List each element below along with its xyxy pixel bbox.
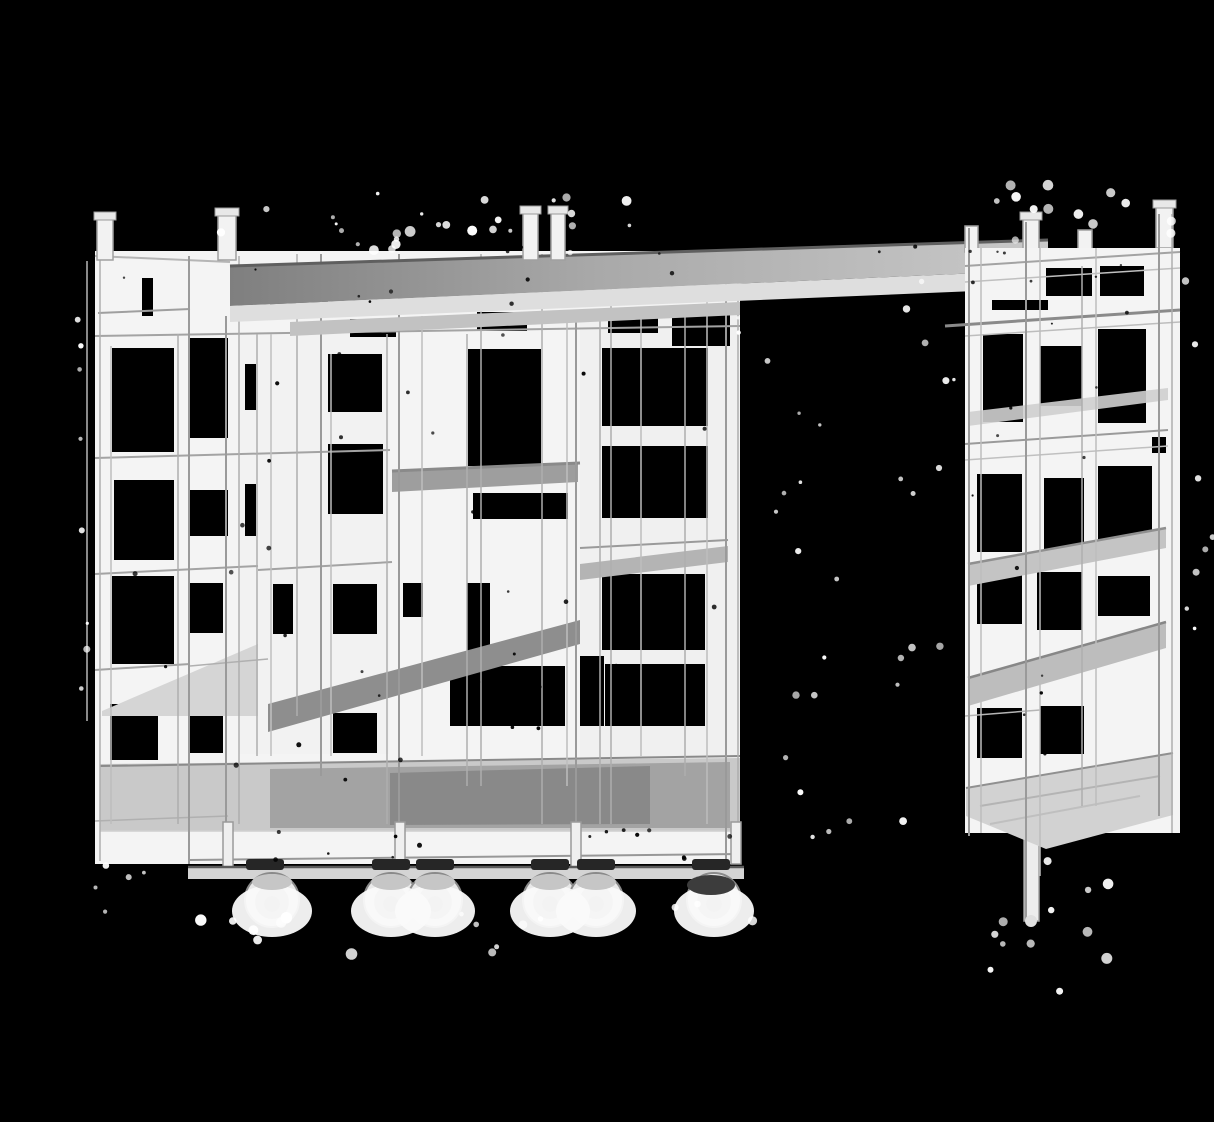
black-speckle — [229, 570, 234, 575]
shelf-opening — [273, 584, 293, 634]
white-speckle — [229, 917, 237, 925]
black-speckle — [1004, 400, 1008, 404]
black-speckle — [605, 830, 608, 833]
white-speckle — [552, 198, 556, 202]
black-speckle — [1015, 566, 1019, 570]
white-speckle — [1011, 192, 1021, 202]
black-speckle — [1082, 456, 1085, 459]
white-speckle — [77, 367, 82, 372]
caster-mount — [577, 859, 615, 870]
caster-bracket — [530, 874, 570, 890]
caster-bracket — [687, 875, 735, 895]
white-speckle — [936, 643, 943, 650]
black-speckle — [507, 590, 510, 593]
white-speckle — [628, 224, 632, 228]
white-speckle — [898, 655, 904, 661]
white-speckle — [394, 236, 399, 241]
black-speckle — [394, 835, 398, 839]
white-speckle — [826, 829, 831, 834]
black-speckle — [1095, 276, 1097, 278]
post-stub-cap — [548, 206, 568, 214]
black-speckle — [635, 833, 639, 837]
white-speckle — [481, 196, 489, 204]
drop-post — [731, 822, 741, 864]
black-speckle — [1125, 311, 1129, 315]
black-speckle — [1007, 531, 1009, 533]
shelf-opening — [112, 348, 174, 452]
white-speckle — [249, 925, 259, 935]
white-speckle — [217, 228, 225, 236]
white-speckle — [388, 245, 396, 253]
black-speckle — [526, 277, 530, 281]
white-speckle — [1085, 887, 1091, 893]
white-speckle — [567, 250, 572, 255]
white-speckle — [898, 477, 903, 482]
white-speckle — [765, 358, 771, 364]
black-speckle — [652, 382, 656, 386]
white-speckle — [1043, 204, 1053, 214]
post-stub — [97, 218, 113, 260]
black-speckle — [1041, 675, 1043, 677]
shelf-opening — [328, 354, 382, 412]
black-speckle — [477, 681, 480, 684]
shelf-opening — [1098, 576, 1150, 616]
white-speckle — [339, 228, 344, 233]
black-speckle — [996, 434, 999, 437]
black-speckle — [682, 856, 687, 861]
post-stub — [523, 212, 538, 260]
black-speckle — [538, 685, 542, 689]
black-speckle — [133, 571, 138, 576]
white-speckle — [103, 910, 107, 914]
white-speckle — [78, 343, 83, 348]
black-speckle — [369, 300, 372, 303]
white-speckle — [1192, 341, 1198, 347]
black-speckle — [267, 459, 271, 463]
black-speckle — [588, 835, 591, 838]
caster-mount — [416, 859, 454, 870]
shelving-product-photo: Grayscale product photograph of white mo… — [40, 16, 1214, 1106]
black-speckle — [296, 742, 301, 747]
black-speckle — [164, 665, 167, 668]
white-speckle — [1103, 879, 1114, 890]
post-stub — [551, 212, 565, 260]
white-speckle — [488, 948, 496, 956]
white-speckle — [436, 222, 441, 227]
black-speckle — [1009, 406, 1012, 409]
white-speckle — [942, 377, 949, 384]
black-speckle — [537, 726, 541, 730]
white-speckle — [908, 644, 916, 652]
caster-bracket — [371, 874, 411, 890]
shelf-opening — [403, 583, 423, 617]
white-speckle — [1056, 988, 1063, 995]
white-speckle — [79, 686, 84, 691]
caster-bracket — [252, 874, 292, 890]
white-speckle — [736, 330, 740, 334]
white-speckle — [519, 920, 528, 929]
white-speckle — [420, 212, 423, 215]
white-speckle — [936, 465, 942, 471]
black-speckle — [844, 243, 846, 245]
black-speckle — [337, 352, 341, 356]
post-foot — [1025, 915, 1037, 927]
white-speckle — [903, 305, 910, 312]
white-speckle — [1182, 277, 1189, 284]
white-speckle — [799, 480, 803, 484]
white-speckle — [1202, 546, 1208, 552]
black-speckle — [582, 372, 586, 376]
white-speckle — [895, 683, 899, 687]
black-speckle — [972, 494, 974, 496]
shelf-opening — [333, 713, 377, 753]
white-speckle — [911, 491, 916, 496]
black-speckle — [1095, 386, 1098, 389]
white-speckle — [195, 914, 206, 925]
white-speckle — [568, 210, 575, 217]
black-speckle — [712, 605, 717, 610]
white-speckle — [103, 862, 110, 869]
black-speckle — [327, 852, 330, 855]
black-speckle — [339, 435, 343, 439]
black-speckle — [878, 250, 881, 253]
black-speckle — [126, 717, 130, 721]
white-speckle — [1027, 940, 1035, 948]
white-speckle — [952, 378, 955, 381]
white-speckle — [1167, 217, 1176, 226]
black-speckle — [417, 843, 422, 848]
black-speckle — [511, 725, 515, 729]
shelf-opening — [473, 493, 568, 519]
black-speckle — [273, 857, 278, 862]
white-speckle — [922, 340, 929, 347]
drop-post — [223, 822, 233, 870]
white-speckle — [774, 510, 778, 514]
black-speckle — [506, 250, 510, 254]
shelf-opening — [190, 583, 223, 633]
black-speckle — [343, 778, 347, 782]
white-speckle — [1074, 209, 1084, 219]
black-speckle — [658, 252, 661, 255]
white-speckle — [276, 917, 286, 927]
white-speckle — [1193, 569, 1200, 576]
black-speckle — [509, 302, 513, 306]
black-speckle — [1051, 323, 1053, 325]
white-speckle — [83, 646, 90, 653]
post-stub-cap — [1153, 200, 1176, 208]
black-speckle — [471, 510, 474, 513]
black-speckle — [615, 664, 618, 667]
black-speckle — [513, 653, 516, 656]
black-speckle — [971, 281, 975, 285]
black-speckle — [1040, 691, 1043, 694]
caster-halo — [232, 885, 312, 937]
white-speckle — [991, 931, 998, 938]
white-speckle — [1185, 606, 1189, 610]
white-speckle — [126, 874, 132, 880]
white-speckle — [1000, 941, 1006, 947]
black-speckle — [391, 856, 394, 859]
black-speckle — [996, 251, 998, 253]
caster-mount — [246, 859, 284, 870]
caster-bracket — [415, 874, 455, 890]
white-speckle — [1088, 219, 1098, 229]
shelf-opening — [602, 446, 708, 518]
white-speckle — [346, 948, 358, 960]
white-speckle — [569, 222, 576, 229]
white-speckle — [405, 226, 416, 237]
black-speckle — [727, 834, 732, 839]
white-speckle — [834, 577, 839, 582]
white-speckle — [562, 193, 570, 201]
white-speckle — [86, 622, 89, 625]
shelf-opening — [1037, 572, 1082, 630]
caster-halo — [556, 885, 636, 937]
white-speckle — [797, 789, 803, 795]
post-stub — [218, 214, 236, 260]
white-speckle — [1030, 205, 1038, 213]
white-speckle — [473, 922, 479, 928]
black-speckle — [670, 271, 674, 275]
black-speckle — [371, 511, 374, 514]
caster-mount — [692, 859, 730, 870]
black-speckle — [398, 758, 403, 763]
black-speckle — [1104, 506, 1109, 511]
white-speckle — [694, 901, 701, 908]
black-speckle — [277, 830, 281, 834]
shelf-opening — [1046, 268, 1092, 296]
black-speckle — [647, 828, 651, 832]
post-stub-cap — [215, 208, 239, 216]
white-speckle — [1048, 907, 1054, 913]
black-speckle — [768, 242, 771, 245]
black-speckle — [361, 670, 364, 673]
white-speckle — [1121, 199, 1130, 208]
caster-mount — [372, 859, 410, 870]
white-speckle — [1166, 229, 1175, 238]
shelf-opening — [602, 348, 708, 426]
white-speckle — [1101, 953, 1112, 964]
white-speckle — [818, 423, 821, 426]
black-speckle — [969, 250, 972, 253]
shelf-opening — [190, 338, 228, 438]
white-speckle — [467, 226, 477, 236]
black-speckle — [168, 447, 172, 451]
shelf-opening — [245, 364, 256, 410]
white-speckle — [822, 655, 826, 659]
white-speckle — [495, 217, 502, 224]
black-speckle — [406, 391, 410, 395]
black-speckle — [123, 277, 125, 279]
shelf-opening — [190, 490, 228, 536]
black-speckle — [358, 295, 361, 298]
white-speckle — [782, 491, 787, 496]
white-speckle — [79, 527, 85, 533]
white-speckle — [75, 317, 81, 323]
white-speckle — [331, 215, 335, 219]
white-speckle — [999, 917, 1008, 926]
black-speckle — [161, 634, 166, 639]
white-speckle — [489, 226, 497, 234]
white-speckle — [508, 229, 512, 233]
shelf-opening — [1040, 706, 1084, 754]
shelf-opening — [605, 664, 705, 726]
white-speckle — [1195, 475, 1201, 481]
white-speckle — [1193, 627, 1197, 631]
black-speckle — [1003, 252, 1006, 255]
white-speckle — [792, 691, 799, 698]
white-speckle — [811, 692, 818, 699]
white-speckle — [1006, 180, 1016, 190]
black-speckle — [913, 245, 917, 249]
white-speckle — [369, 245, 379, 255]
shelf-opening — [602, 574, 705, 650]
white-speckle — [94, 886, 98, 890]
white-speckle — [263, 206, 269, 212]
white-speckle — [737, 316, 740, 319]
white-speckle — [142, 871, 146, 875]
white-speckle — [797, 412, 800, 415]
white-speckle — [253, 936, 262, 945]
black-speckle — [275, 381, 279, 385]
white-speckle — [494, 944, 499, 949]
shelf-opening — [114, 480, 174, 560]
post-stub-cap — [94, 212, 116, 220]
white-speckle — [1012, 236, 1019, 243]
black-speckle — [1023, 713, 1026, 716]
black-speckle — [1075, 589, 1079, 593]
black-speckle — [234, 763, 239, 768]
caster-bracket — [576, 874, 616, 890]
white-speckle — [994, 198, 1000, 204]
black-speckle — [564, 599, 569, 604]
white-speckle — [899, 817, 907, 825]
scene-canvas — [40, 16, 1214, 1106]
white-speckle — [846, 818, 852, 824]
black-speckle — [283, 634, 287, 638]
white-speckle — [442, 221, 450, 229]
black-speckle — [520, 246, 523, 249]
white-speckle — [988, 967, 994, 973]
white-speckle — [810, 835, 814, 839]
black-speckle — [703, 427, 707, 431]
white-speckle — [748, 916, 757, 925]
black-speckle — [1043, 752, 1046, 755]
shelf-opening — [245, 484, 256, 536]
white-speckle — [622, 196, 632, 206]
black-speckle — [1030, 280, 1033, 283]
white-speckle — [795, 548, 801, 554]
white-speckle — [335, 222, 338, 225]
black-speckle — [622, 828, 626, 832]
shelf-opening — [977, 474, 1022, 552]
caster-mount — [531, 859, 569, 870]
white-speckle — [1044, 857, 1052, 865]
black-speckle — [621, 596, 625, 600]
white-speckle — [1043, 180, 1054, 191]
shelf-opening — [1098, 329, 1146, 423]
shelf-opening — [467, 583, 490, 656]
black-speckle — [266, 546, 271, 551]
white-speckle — [672, 904, 679, 911]
shelf-opening — [328, 444, 383, 514]
white-speckle — [78, 437, 82, 441]
black-speckle — [240, 523, 245, 528]
post-stub-cap — [520, 206, 541, 214]
shelf-opening — [112, 576, 174, 664]
shelf-opening — [1044, 478, 1084, 554]
white-speckle — [919, 279, 924, 284]
black-speckle — [389, 289, 393, 293]
black-speckle — [485, 452, 487, 454]
black-speckle — [501, 333, 505, 337]
white-speckle — [376, 192, 380, 196]
shelf-opening — [333, 584, 377, 634]
shelf-opening — [977, 708, 1022, 758]
white-speckle — [1083, 927, 1093, 937]
white-speckle — [783, 755, 788, 760]
white-speckle — [356, 242, 360, 246]
white-speckle — [459, 912, 464, 917]
shelf-opening — [468, 349, 541, 466]
post-stub-cap — [1020, 212, 1042, 220]
black-speckle — [378, 694, 381, 697]
black-speckle — [1120, 264, 1122, 266]
shelf-opening — [672, 314, 730, 346]
black-speckle — [431, 431, 434, 434]
white-speckle — [1106, 188, 1115, 197]
shelf-opening — [1040, 346, 1082, 406]
black-speckle — [254, 268, 256, 270]
caster-halo — [395, 885, 475, 937]
white-speckle — [538, 916, 543, 921]
